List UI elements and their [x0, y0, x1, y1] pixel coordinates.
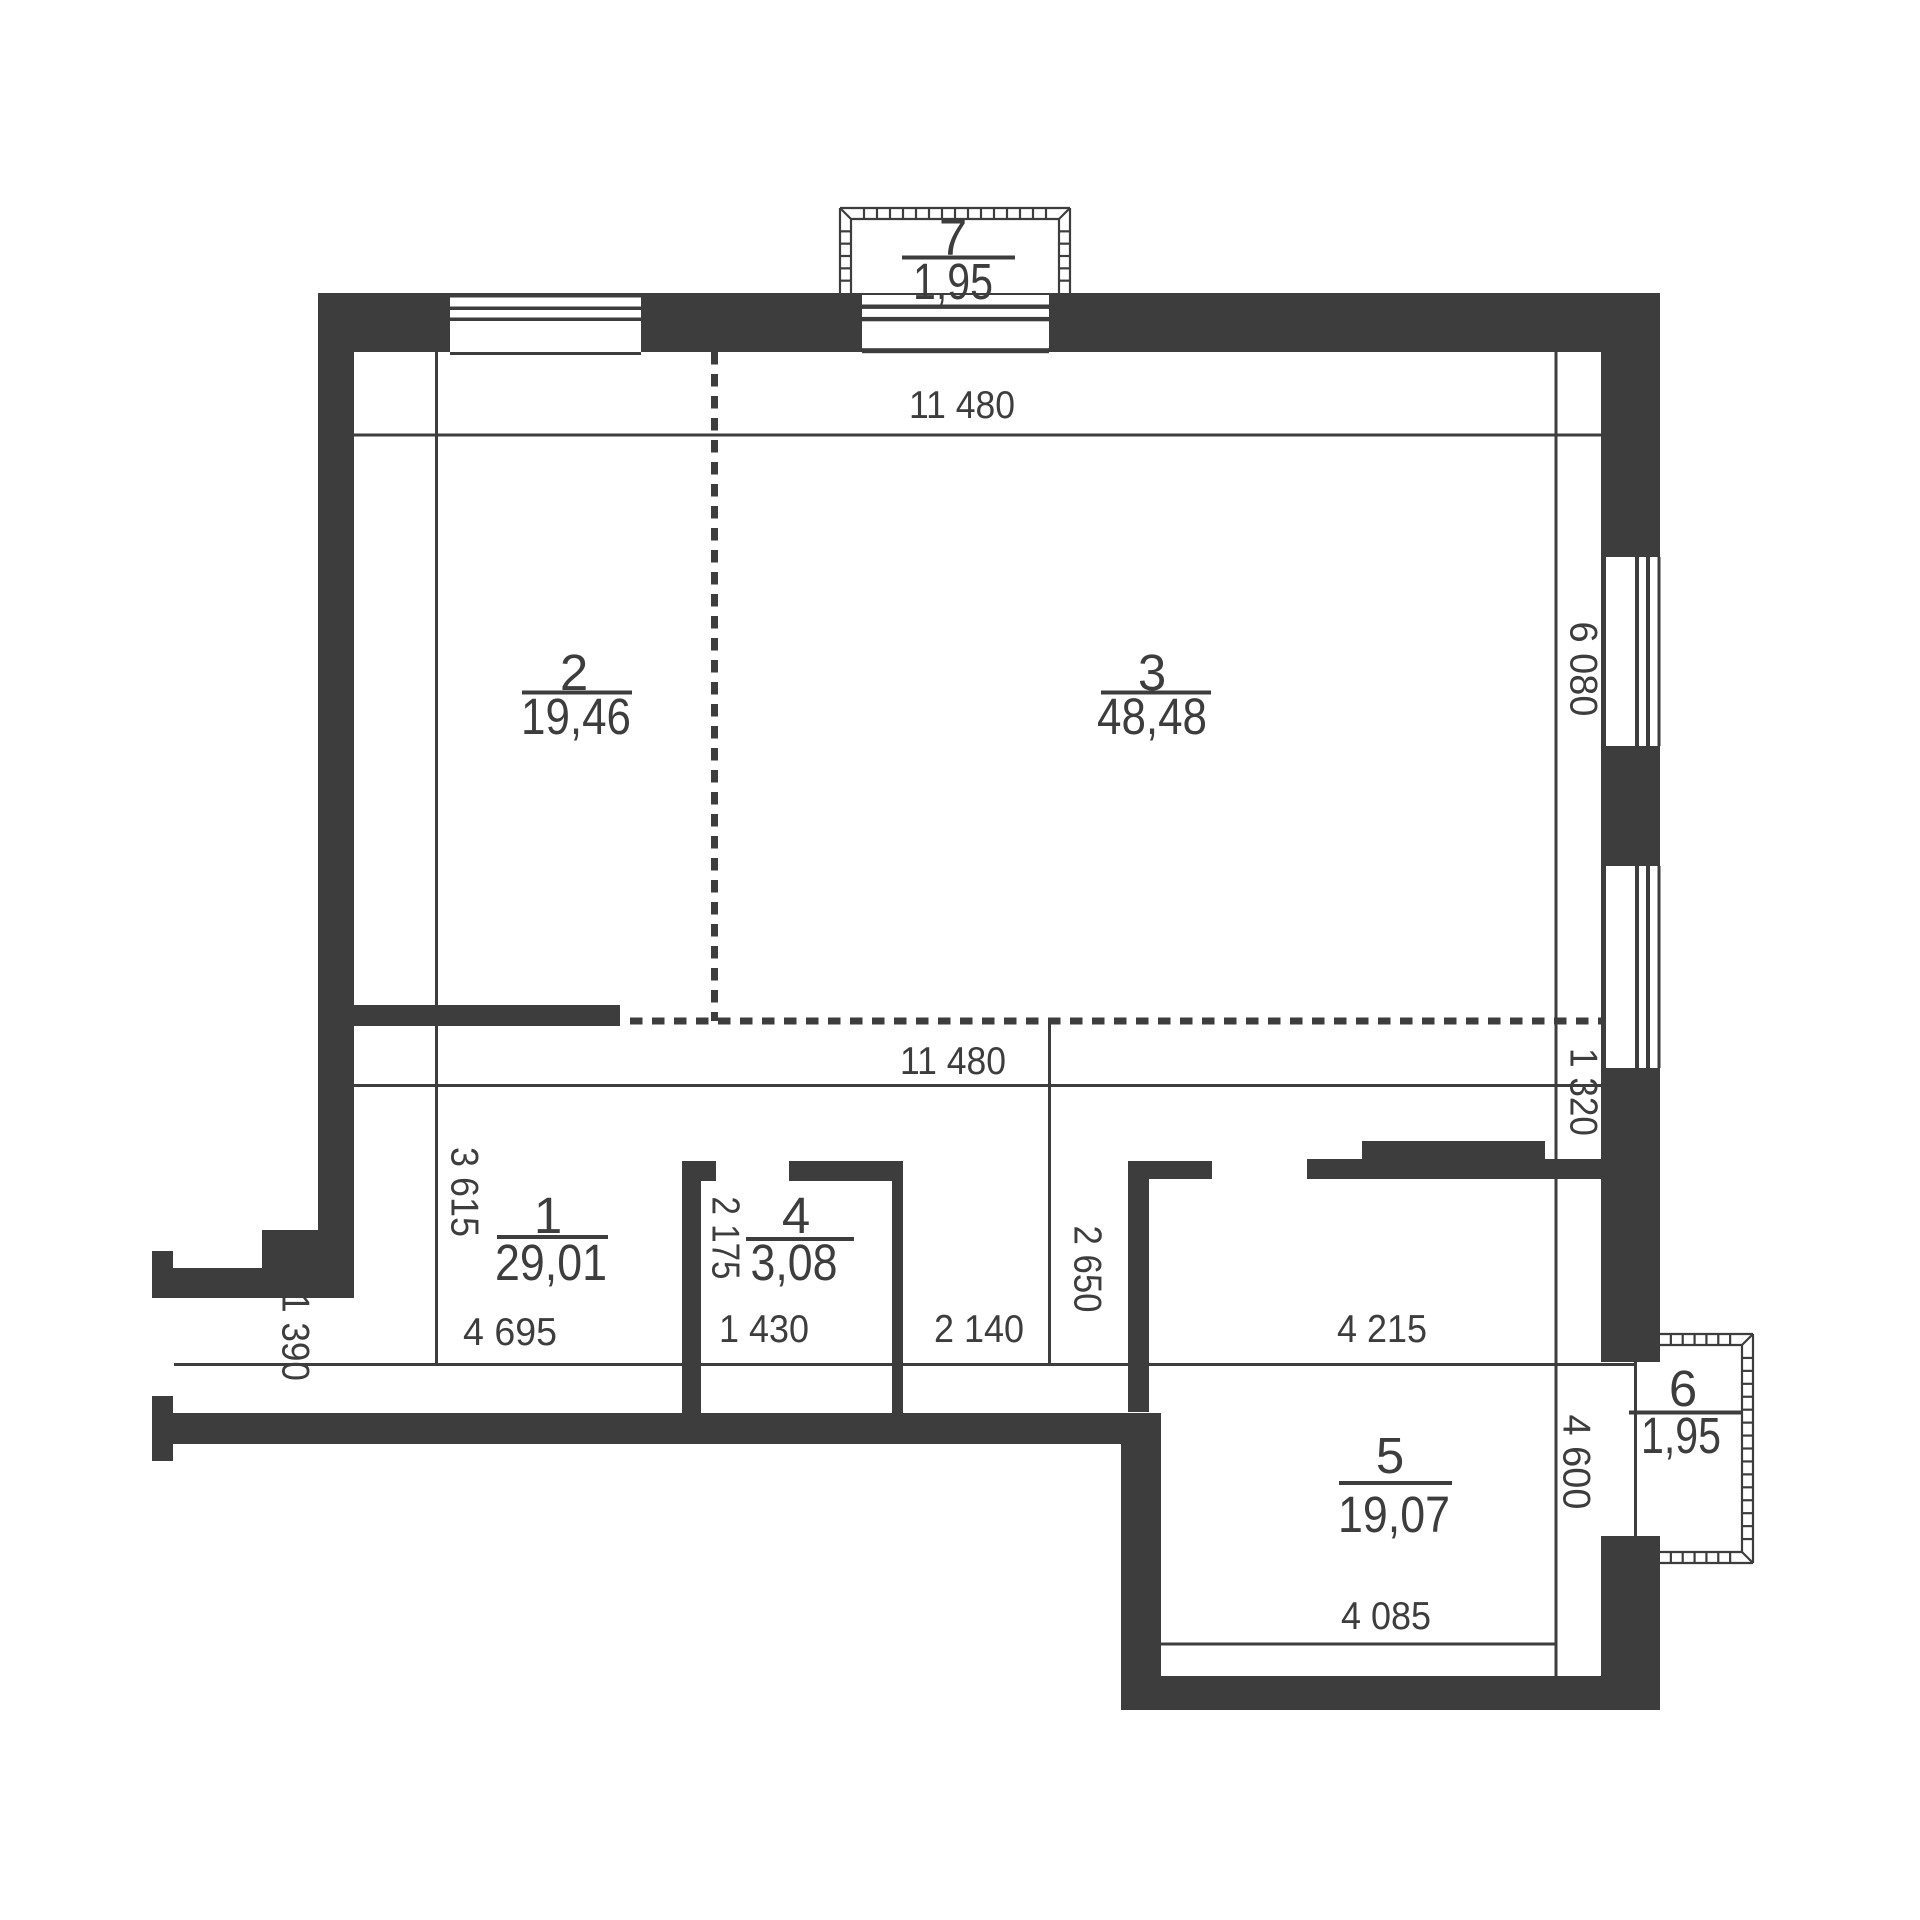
- svg-text:6 080: 6 080: [1562, 622, 1605, 717]
- svg-text:1,95: 1,95: [1641, 1407, 1721, 1464]
- svg-text:5: 5: [1376, 1427, 1404, 1484]
- svg-text:3,08: 3,08: [751, 1234, 838, 1291]
- svg-text:2 175: 2 175: [704, 1197, 747, 1280]
- svg-text:3 615: 3 615: [443, 1147, 486, 1237]
- svg-text:1 390: 1 390: [274, 1293, 317, 1381]
- svg-text:2 140: 2 140: [934, 1308, 1024, 1351]
- svg-text:11 480: 11 480: [900, 1040, 1006, 1083]
- svg-text:4 600: 4 600: [1555, 1415, 1598, 1510]
- svg-text:19,46: 19,46: [521, 688, 631, 745]
- svg-text:1,95: 1,95: [913, 253, 993, 310]
- svg-text:2 650: 2 650: [1066, 1226, 1109, 1313]
- svg-text:4 085: 4 085: [1341, 1595, 1431, 1638]
- svg-text:48,48: 48,48: [1097, 688, 1207, 745]
- svg-text:4 215: 4 215: [1337, 1308, 1427, 1351]
- svg-text:4 695: 4 695: [463, 1311, 557, 1354]
- svg-text:11 480: 11 480: [909, 384, 1015, 427]
- svg-text:1 320: 1 320: [1562, 1048, 1605, 1136]
- svg-text:29,01: 29,01: [495, 1234, 607, 1291]
- svg-text:19,07: 19,07: [1338, 1486, 1450, 1543]
- svg-text:1 430: 1 430: [719, 1308, 809, 1351]
